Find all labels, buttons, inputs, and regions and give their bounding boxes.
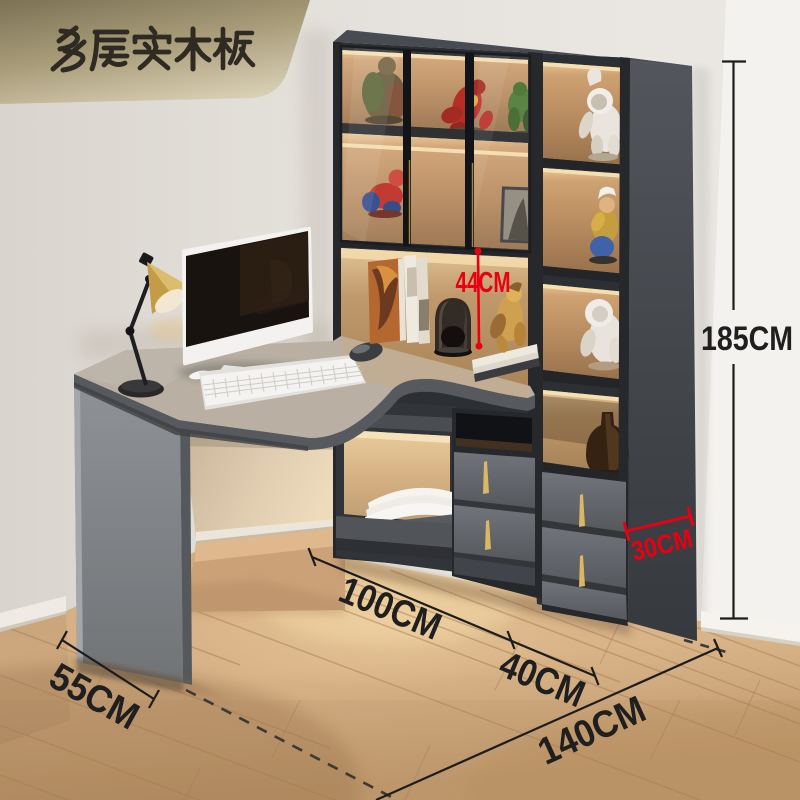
svg-text:44CM: 44CM [456,267,511,299]
svg-text:185CM: 185CM [701,320,793,358]
